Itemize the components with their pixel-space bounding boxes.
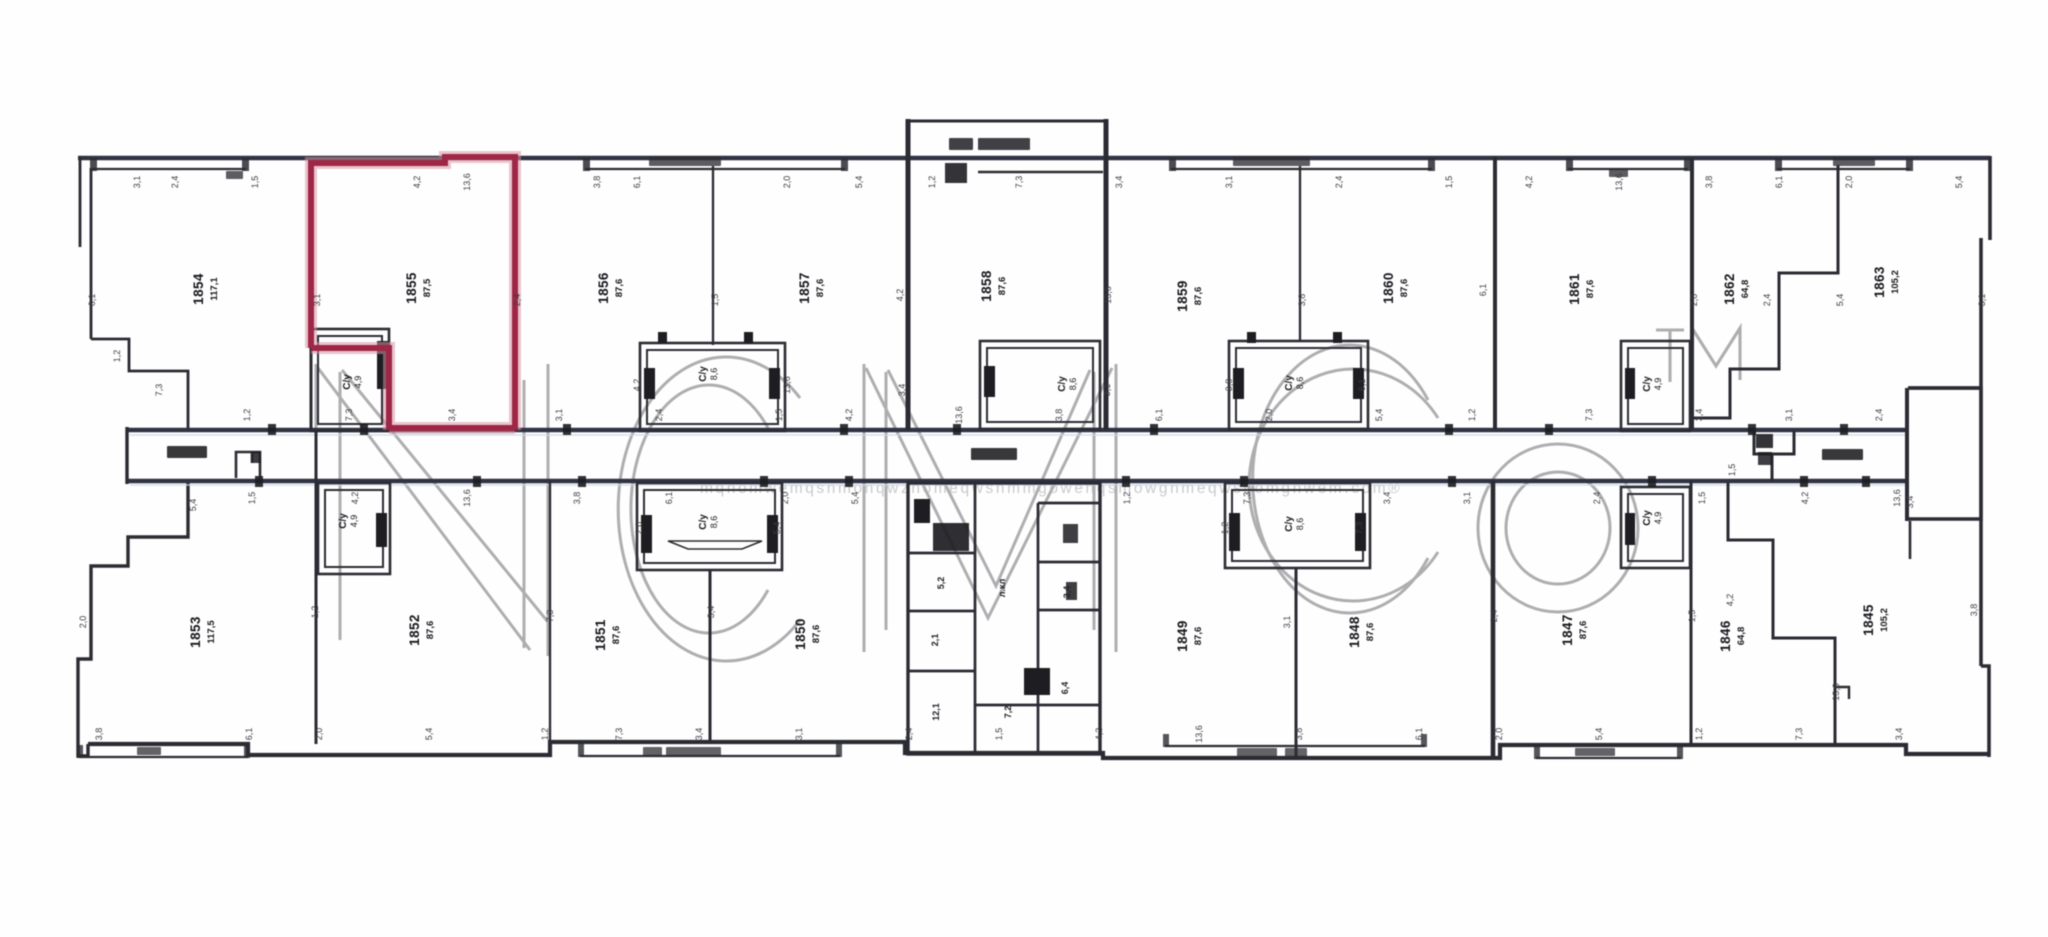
svg-text:3,4: 3,4 bbox=[447, 409, 457, 422]
svg-text:5,4: 5,4 bbox=[850, 492, 860, 505]
svg-text:С/у: С/у bbox=[342, 374, 353, 390]
svg-text:1848: 1848 bbox=[1347, 616, 1362, 648]
svg-text:1,2: 1,2 bbox=[310, 606, 320, 619]
svg-text:С/у: С/у bbox=[698, 366, 709, 382]
svg-text:117,1: 117,1 bbox=[209, 277, 220, 301]
svg-text:3,1: 3,1 bbox=[1282, 616, 1292, 629]
svg-text:6,1: 6,1 bbox=[1357, 379, 1367, 392]
svg-text:87,6: 87,6 bbox=[611, 626, 622, 645]
svg-text:2,4: 2,4 bbox=[1762, 294, 1772, 307]
svg-text:3,8: 3,8 bbox=[592, 176, 602, 189]
svg-text:6,1: 6,1 bbox=[1774, 176, 1784, 189]
svg-text:5,4: 5,4 bbox=[772, 522, 782, 535]
svg-text:1852: 1852 bbox=[407, 614, 422, 646]
svg-text:64,8: 64,8 bbox=[1736, 627, 1747, 646]
svg-text:1849: 1849 bbox=[1175, 620, 1190, 652]
svg-text:64,8: 64,8 bbox=[1740, 280, 1751, 299]
svg-text:7,3: 7,3 bbox=[1794, 728, 1804, 741]
svg-text:12,1: 12,1 bbox=[931, 703, 941, 721]
svg-text:2,4: 2,4 bbox=[1489, 610, 1499, 623]
svg-text:3,8: 3,8 bbox=[1054, 409, 1064, 422]
svg-text:3,8: 3,8 bbox=[1704, 176, 1714, 189]
svg-text:4,9: 4,9 bbox=[353, 376, 363, 389]
svg-text:3,4: 3,4 bbox=[1382, 492, 1392, 505]
svg-text:2,0: 2,0 bbox=[634, 522, 644, 535]
svg-text:1,5: 1,5 bbox=[710, 294, 720, 307]
svg-text:7,3: 7,3 bbox=[1014, 176, 1024, 189]
svg-text:3,4: 3,4 bbox=[706, 606, 716, 619]
svg-text:1861: 1861 bbox=[1567, 273, 1582, 305]
svg-text:4,2: 4,2 bbox=[1725, 594, 1735, 607]
svg-text:1,2: 1,2 bbox=[242, 409, 252, 422]
svg-text:1851: 1851 bbox=[593, 619, 608, 651]
svg-text:3,8: 3,8 bbox=[1969, 604, 1979, 617]
svg-text:3,8: 3,8 bbox=[94, 728, 104, 741]
svg-text:3,4: 3,4 bbox=[694, 728, 704, 741]
svg-text:1,5: 1,5 bbox=[774, 409, 784, 422]
svg-text:4,9: 4,9 bbox=[1653, 378, 1663, 391]
svg-text:2,4: 2,4 bbox=[1592, 492, 1602, 505]
svg-text:2,0: 2,0 bbox=[1689, 294, 1699, 307]
svg-text:7,3: 7,3 bbox=[614, 728, 624, 741]
svg-text:1,2: 1,2 bbox=[540, 728, 550, 741]
svg-text:2,0: 2,0 bbox=[1844, 176, 1854, 189]
svg-text:3,1: 3,1 bbox=[1977, 294, 1987, 307]
svg-text:4,2: 4,2 bbox=[1800, 492, 1810, 505]
svg-text:13,6: 13,6 bbox=[1614, 173, 1624, 191]
svg-text:5,4: 5,4 bbox=[1954, 176, 1964, 189]
svg-text:1860: 1860 bbox=[1381, 272, 1396, 304]
svg-text:1,5: 1,5 bbox=[1697, 492, 1707, 505]
svg-text:3,1: 3,1 bbox=[554, 409, 564, 422]
svg-text:2,4: 2,4 bbox=[1874, 409, 1884, 422]
svg-text:6,4: 6,4 bbox=[1060, 682, 1070, 695]
svg-text:С/у: С/у bbox=[1284, 375, 1295, 391]
svg-text:2,4: 2,4 bbox=[512, 294, 522, 307]
svg-text:4,9: 4,9 bbox=[349, 515, 359, 528]
svg-text:1,5: 1,5 bbox=[1687, 610, 1697, 623]
svg-text:1857: 1857 bbox=[797, 272, 812, 304]
svg-text:7,3: 7,3 bbox=[1242, 492, 1252, 505]
svg-text:3,1: 3,1 bbox=[794, 728, 804, 741]
svg-text:87,6: 87,6 bbox=[815, 279, 826, 298]
svg-text:3,8: 3,8 bbox=[1224, 379, 1234, 392]
svg-text:2,0: 2,0 bbox=[1494, 728, 1504, 741]
svg-text:2,0: 2,0 bbox=[78, 616, 88, 629]
svg-text:3,1: 3,1 bbox=[1462, 492, 1472, 505]
svg-text:117,5: 117,5 bbox=[206, 620, 217, 644]
svg-text:1,2: 1,2 bbox=[927, 176, 937, 189]
svg-text:105,2: 105,2 bbox=[1890, 270, 1901, 294]
svg-text:л.кл: л.кл bbox=[997, 578, 1007, 597]
svg-text:87,6: 87,6 bbox=[1193, 627, 1204, 646]
svg-text:7,3: 7,3 bbox=[1354, 522, 1364, 535]
svg-text:1862: 1862 bbox=[1722, 273, 1737, 305]
svg-text:87,6: 87,6 bbox=[1193, 287, 1204, 306]
svg-text:1853: 1853 bbox=[188, 616, 203, 648]
svg-text:1,5: 1,5 bbox=[994, 728, 1004, 741]
svg-text:7,3: 7,3 bbox=[344, 409, 354, 422]
svg-text:3,8: 3,8 bbox=[572, 492, 582, 505]
svg-text:13,6: 13,6 bbox=[1194, 725, 1204, 743]
svg-text:13,6: 13,6 bbox=[462, 173, 472, 191]
svg-text:3,1: 3,1 bbox=[1224, 176, 1234, 189]
svg-text:1,2: 1,2 bbox=[1467, 409, 1477, 422]
svg-text:3,4: 3,4 bbox=[1894, 728, 1904, 741]
svg-text:2,1: 2,1 bbox=[930, 634, 940, 647]
svg-text:87,6: 87,6 bbox=[614, 279, 625, 298]
svg-text:2,4: 2,4 bbox=[1334, 176, 1344, 189]
svg-text:87,6: 87,6 bbox=[1365, 623, 1376, 642]
svg-text:6,1: 6,1 bbox=[1478, 284, 1488, 297]
svg-text:3,1: 3,1 bbox=[312, 294, 322, 307]
svg-text:1,5: 1,5 bbox=[247, 492, 257, 505]
svg-text:8,6: 8,6 bbox=[1295, 377, 1305, 390]
svg-text:6,1: 6,1 bbox=[664, 492, 674, 505]
svg-text:8,6: 8,6 bbox=[709, 516, 719, 529]
svg-text:3,8: 3,8 bbox=[1294, 728, 1304, 741]
svg-text:2,0: 2,0 bbox=[314, 728, 324, 741]
svg-text:5,4: 5,4 bbox=[424, 728, 434, 741]
svg-text:3,4: 3,4 bbox=[1114, 176, 1124, 189]
svg-text:1859: 1859 bbox=[1175, 280, 1190, 312]
svg-text:5,2: 5,2 bbox=[936, 577, 946, 590]
svg-text:1855: 1855 bbox=[404, 272, 419, 304]
svg-text:87,6: 87,6 bbox=[811, 625, 822, 644]
svg-text:7,3: 7,3 bbox=[545, 610, 555, 623]
svg-text:4,2: 4,2 bbox=[895, 289, 905, 302]
svg-text:1846: 1846 bbox=[1718, 620, 1733, 652]
svg-text:С/у: С/у bbox=[1284, 516, 1295, 532]
svg-text:4,2: 4,2 bbox=[412, 176, 422, 189]
svg-text:7,3: 7,3 bbox=[154, 384, 164, 397]
svg-text:5,4: 5,4 bbox=[1594, 728, 1604, 741]
svg-text:3,4: 3,4 bbox=[1905, 496, 1915, 509]
svg-text:5,4: 5,4 bbox=[854, 176, 864, 189]
svg-text:1854: 1854 bbox=[191, 273, 206, 305]
svg-text:1,2: 1,2 bbox=[1122, 492, 1132, 505]
svg-text:2,0: 2,0 bbox=[1264, 409, 1274, 422]
svg-text:105,2: 105,2 bbox=[1879, 608, 1890, 632]
svg-text:3,4: 3,4 bbox=[1062, 586, 1072, 599]
svg-text:1,5: 1,5 bbox=[1444, 176, 1454, 189]
svg-text:87,6: 87,6 bbox=[1585, 280, 1596, 299]
svg-text:4,2: 4,2 bbox=[632, 379, 642, 392]
svg-text:С/у: С/у bbox=[1642, 510, 1653, 526]
svg-text:87,6: 87,6 bbox=[425, 621, 436, 640]
svg-text:1,2: 1,2 bbox=[1220, 522, 1230, 535]
svg-text:13,6: 13,6 bbox=[1831, 683, 1841, 701]
svg-text:87,5: 87,5 bbox=[422, 278, 433, 297]
svg-text:4,9: 4,9 bbox=[1653, 512, 1663, 525]
svg-text:С/у: С/у bbox=[1057, 376, 1068, 392]
svg-text:87,6: 87,6 bbox=[997, 277, 1008, 296]
svg-text:8,6: 8,6 bbox=[1295, 518, 1305, 531]
svg-text:2,0: 2,0 bbox=[782, 176, 792, 189]
svg-text:1856: 1856 bbox=[596, 272, 611, 304]
svg-text:87,6: 87,6 bbox=[1399, 279, 1410, 298]
svg-text:5,4: 5,4 bbox=[1835, 294, 1845, 307]
svg-text:4,2: 4,2 bbox=[350, 492, 360, 505]
svg-text:1,5: 1,5 bbox=[250, 176, 260, 189]
svg-text:6,1: 6,1 bbox=[1154, 409, 1164, 422]
svg-text:3,1: 3,1 bbox=[1784, 409, 1794, 422]
svg-text:87,6: 87,6 bbox=[1578, 621, 1589, 640]
svg-text:1858: 1858 bbox=[979, 270, 994, 302]
svg-text:5,4: 5,4 bbox=[1374, 409, 1384, 422]
svg-text:8,6: 8,6 bbox=[1068, 378, 1078, 391]
svg-text:С/у: С/у bbox=[338, 513, 349, 529]
svg-text:6,1: 6,1 bbox=[244, 728, 254, 741]
svg-text:13,6: 13,6 bbox=[1103, 286, 1113, 304]
svg-text:1,5: 1,5 bbox=[1727, 464, 1737, 477]
svg-text:1863: 1863 bbox=[1872, 266, 1887, 298]
svg-text:1845: 1845 bbox=[1861, 604, 1876, 636]
svg-text:1850: 1850 bbox=[793, 618, 808, 650]
svg-text:7,2: 7,2 bbox=[1003, 706, 1013, 719]
svg-text:2,0: 2,0 bbox=[780, 492, 790, 505]
svg-text:С/у: С/у bbox=[698, 514, 709, 530]
svg-text:С/у: С/у bbox=[1642, 376, 1653, 392]
svg-text:5,4: 5,4 bbox=[188, 499, 198, 512]
svg-text:4,2: 4,2 bbox=[1524, 176, 1534, 189]
svg-text:2,4: 2,4 bbox=[904, 728, 914, 741]
svg-text:3,1: 3,1 bbox=[132, 176, 142, 189]
svg-text:1,2: 1,2 bbox=[112, 350, 122, 363]
svg-text:4,2: 4,2 bbox=[844, 409, 854, 422]
svg-text:3,4: 3,4 bbox=[1694, 409, 1704, 422]
svg-text:3,8: 3,8 bbox=[1297, 294, 1307, 307]
svg-text:1847: 1847 bbox=[1560, 614, 1575, 646]
svg-text:13,6: 13,6 bbox=[954, 406, 964, 424]
svg-text:6,1: 6,1 bbox=[1414, 728, 1424, 741]
svg-text:2,4: 2,4 bbox=[170, 176, 180, 189]
svg-text:3,4: 3,4 bbox=[897, 384, 907, 397]
svg-text:6,1: 6,1 bbox=[632, 176, 642, 189]
svg-text:13,6: 13,6 bbox=[1892, 489, 1902, 507]
svg-text:1,2: 1,2 bbox=[1694, 728, 1704, 741]
svg-text:2,4: 2,4 bbox=[654, 409, 664, 422]
svg-text:6,1: 6,1 bbox=[87, 294, 97, 307]
svg-text:7,3: 7,3 bbox=[1584, 409, 1594, 422]
svg-text:3,1: 3,1 bbox=[1102, 384, 1112, 397]
svg-text:13,6: 13,6 bbox=[462, 489, 472, 507]
svg-text:8,6: 8,6 bbox=[709, 368, 719, 381]
svg-text:13,6: 13,6 bbox=[782, 376, 792, 394]
svg-text:4,2: 4,2 bbox=[1094, 728, 1104, 741]
